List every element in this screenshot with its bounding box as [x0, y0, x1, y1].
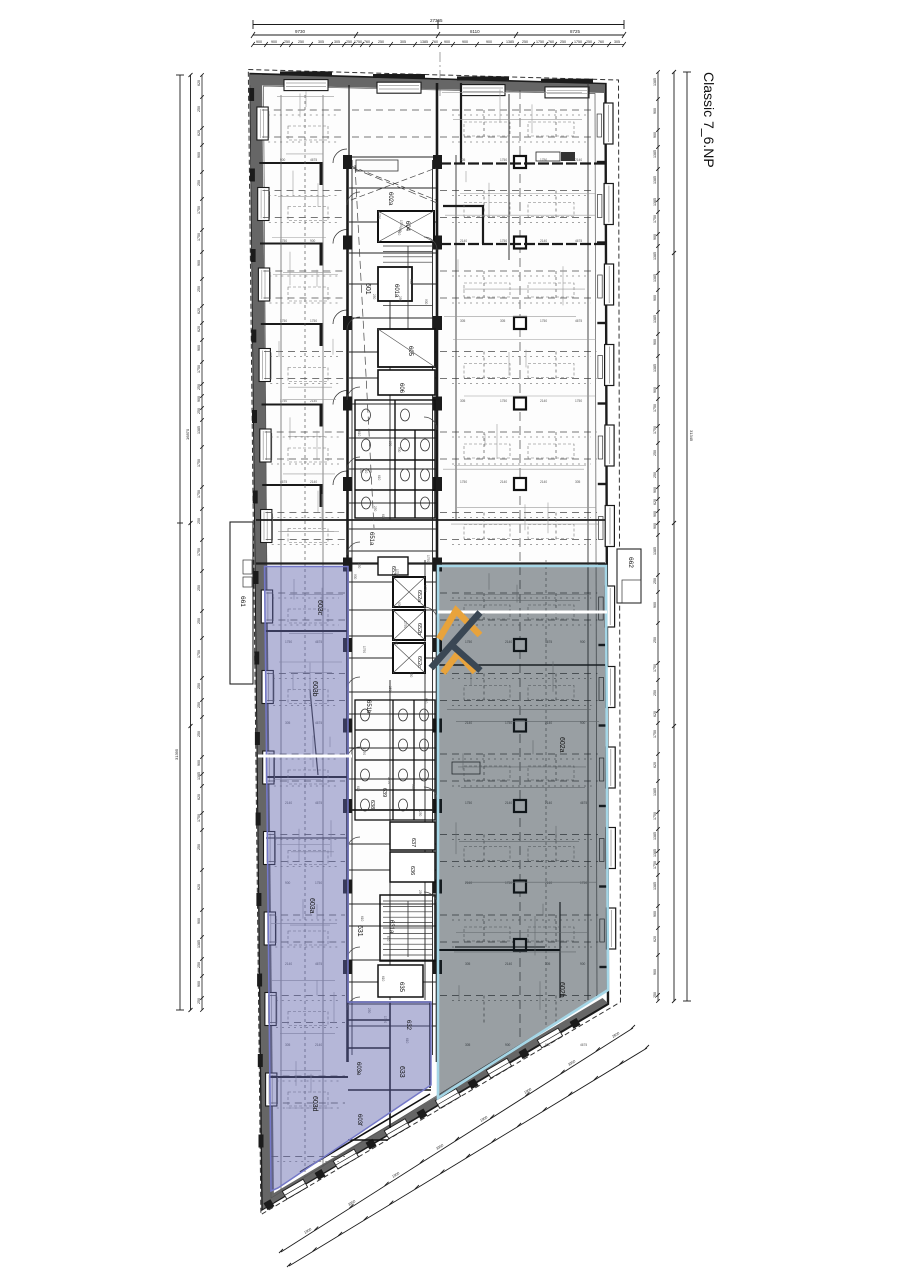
- svg-text:900: 900: [256, 40, 262, 44]
- svg-text:900: 900: [398, 227, 402, 233]
- svg-text:900: 900: [653, 602, 657, 608]
- svg-text:250: 250: [586, 40, 592, 44]
- svg-text:2140: 2140: [540, 399, 547, 403]
- svg-text:250: 250: [197, 408, 201, 414]
- svg-text:900: 900: [197, 918, 201, 924]
- svg-text:900: 900: [653, 523, 657, 529]
- svg-text:1750: 1750: [575, 399, 582, 403]
- svg-text:900: 900: [444, 40, 450, 44]
- svg-text:250: 250: [197, 844, 201, 850]
- svg-text:8725: 8725: [570, 29, 581, 34]
- svg-text:1750: 1750: [197, 233, 201, 241]
- svg-text:1385: 1385: [653, 849, 657, 857]
- svg-text:250: 250: [197, 618, 201, 624]
- svg-text:31395: 31395: [174, 748, 179, 760]
- svg-text:900: 900: [409, 279, 413, 285]
- svg-text:1385: 1385: [653, 198, 657, 206]
- svg-text:760: 760: [598, 40, 604, 44]
- svg-text:900: 900: [271, 40, 277, 44]
- svg-text:1750: 1750: [197, 814, 201, 822]
- svg-text:900: 900: [310, 239, 316, 243]
- svg-text:9730: 9730: [295, 29, 306, 34]
- svg-text:1750: 1750: [197, 650, 201, 658]
- svg-text:602a: 602a: [387, 192, 393, 206]
- svg-text:250: 250: [372, 294, 376, 300]
- svg-text:250: 250: [653, 637, 657, 643]
- svg-text:1385: 1385: [653, 150, 657, 158]
- svg-text:1750: 1750: [536, 40, 544, 44]
- svg-text:1385: 1385: [653, 547, 657, 555]
- svg-text:1750: 1750: [500, 158, 507, 162]
- svg-text:610: 610: [381, 514, 385, 520]
- svg-text:305: 305: [460, 399, 466, 403]
- svg-text:603e: 603e: [355, 1062, 361, 1076]
- svg-text:305: 305: [400, 40, 406, 44]
- svg-text:603b: 603b: [311, 681, 318, 697]
- svg-text:900: 900: [653, 132, 657, 138]
- svg-text:1385: 1385: [420, 40, 428, 44]
- svg-text:610: 610: [357, 431, 361, 437]
- svg-text:1750: 1750: [387, 777, 391, 784]
- svg-text:1385: 1385: [197, 940, 201, 948]
- svg-text:620: 620: [197, 130, 201, 136]
- svg-text:605: 605: [407, 346, 413, 357]
- svg-text:1750: 1750: [653, 426, 657, 434]
- svg-text:2140: 2140: [540, 480, 547, 484]
- svg-text:900: 900: [653, 969, 657, 975]
- svg-text:1750: 1750: [197, 365, 201, 373]
- svg-text:900: 900: [486, 40, 492, 44]
- svg-text:4675: 4675: [575, 319, 582, 323]
- svg-text:900: 900: [653, 911, 657, 917]
- svg-text:250: 250: [346, 40, 352, 44]
- svg-text:900: 900: [397, 602, 401, 608]
- svg-text:250: 250: [378, 40, 384, 44]
- svg-text:250: 250: [298, 40, 304, 44]
- svg-text:900: 900: [197, 152, 201, 158]
- svg-text:900: 900: [411, 784, 415, 790]
- svg-text:1750: 1750: [377, 212, 381, 219]
- svg-text:603c: 603c: [316, 600, 323, 616]
- svg-text:639: 639: [381, 788, 387, 797]
- svg-text:652c: 652c: [416, 656, 422, 668]
- svg-text:250: 250: [197, 683, 201, 689]
- svg-text:1385: 1385: [653, 176, 657, 184]
- svg-text:1750: 1750: [197, 490, 201, 498]
- svg-text:2140: 2140: [575, 158, 582, 162]
- svg-text:250: 250: [653, 690, 657, 696]
- svg-text:900: 900: [353, 574, 357, 580]
- svg-text:250: 250: [394, 640, 398, 646]
- svg-text:900: 900: [424, 299, 428, 305]
- svg-text:636: 636: [409, 866, 415, 875]
- svg-text:603d: 603d: [311, 1096, 318, 1112]
- svg-text:305: 305: [460, 158, 466, 162]
- svg-text:1750: 1750: [653, 730, 657, 738]
- svg-text:900: 900: [653, 234, 657, 240]
- svg-text:1385: 1385: [506, 40, 514, 44]
- svg-text:1385: 1385: [653, 315, 657, 323]
- svg-text:661: 661: [239, 596, 246, 607]
- svg-text:1750: 1750: [403, 621, 407, 628]
- svg-text:250: 250: [284, 40, 290, 44]
- svg-text:610: 610: [381, 976, 385, 982]
- svg-text:1750: 1750: [574, 40, 582, 44]
- svg-text:601a: 601a: [393, 284, 399, 298]
- svg-text:250: 250: [197, 962, 201, 968]
- svg-text:603f: 603f: [356, 1114, 362, 1126]
- svg-text:1385: 1385: [653, 832, 657, 840]
- svg-text:1750: 1750: [362, 748, 366, 755]
- svg-text:1750: 1750: [653, 664, 657, 672]
- svg-text:250: 250: [409, 672, 413, 678]
- svg-text:900: 900: [280, 158, 286, 162]
- svg-text:610: 610: [364, 468, 368, 474]
- svg-text:305: 305: [460, 319, 466, 323]
- svg-text:2140: 2140: [540, 239, 547, 243]
- svg-text:1385: 1385: [653, 78, 657, 86]
- svg-text:250: 250: [197, 286, 201, 292]
- svg-text:250: 250: [522, 40, 528, 44]
- svg-text:1385: 1385: [653, 882, 657, 890]
- svg-text:250: 250: [418, 890, 422, 896]
- svg-text:1750: 1750: [460, 480, 467, 484]
- svg-text:8110: 8110: [470, 29, 480, 34]
- svg-text:1750: 1750: [197, 459, 201, 467]
- svg-text:631a: 631a: [388, 920, 394, 934]
- svg-text:250: 250: [359, 468, 363, 474]
- svg-text:2140: 2140: [500, 480, 507, 484]
- svg-text:620: 620: [653, 711, 657, 717]
- svg-text:620: 620: [653, 499, 657, 505]
- svg-text:250: 250: [653, 578, 657, 584]
- svg-text:1750: 1750: [540, 158, 547, 162]
- svg-text:652b: 652b: [416, 623, 422, 635]
- svg-text:620: 620: [197, 308, 201, 314]
- svg-text:620: 620: [653, 762, 657, 768]
- svg-text:1385: 1385: [653, 788, 657, 796]
- svg-text:Classic 7_6.NP: Classic 7_6.NP: [701, 72, 717, 168]
- svg-text:250: 250: [357, 563, 361, 569]
- svg-text:4675: 4675: [575, 239, 582, 243]
- svg-text:610: 610: [356, 786, 360, 792]
- svg-text:900: 900: [197, 345, 201, 351]
- svg-text:1750: 1750: [653, 861, 657, 869]
- svg-text:900: 900: [197, 981, 201, 987]
- svg-text:601: 601: [364, 283, 371, 295]
- svg-text:620: 620: [197, 794, 201, 800]
- svg-text:250: 250: [197, 180, 201, 186]
- svg-text:305: 305: [334, 40, 340, 44]
- svg-text:900: 900: [653, 487, 657, 493]
- svg-text:610: 610: [377, 475, 381, 481]
- svg-text:305: 305: [318, 40, 324, 44]
- svg-text:4675: 4675: [580, 1043, 587, 1047]
- svg-text:16870: 16870: [185, 428, 190, 440]
- svg-text:1750: 1750: [540, 319, 547, 323]
- svg-text:1750: 1750: [280, 239, 287, 243]
- svg-text:4675: 4675: [280, 480, 287, 484]
- svg-text:900: 900: [462, 40, 468, 44]
- svg-text:662: 662: [627, 557, 634, 568]
- svg-text:2140: 2140: [460, 239, 467, 243]
- svg-text:620: 620: [197, 884, 201, 890]
- svg-text:653: 653: [390, 566, 396, 575]
- svg-text:637: 637: [410, 838, 416, 847]
- svg-text:900: 900: [653, 108, 657, 114]
- svg-text:651b: 651b: [365, 700, 371, 714]
- svg-text:305: 305: [575, 480, 581, 484]
- svg-text:250: 250: [197, 384, 201, 390]
- svg-text:27365: 27365: [430, 18, 443, 23]
- svg-text:1750: 1750: [354, 40, 362, 44]
- svg-text:606: 606: [398, 383, 404, 394]
- svg-text:2140: 2140: [310, 480, 317, 484]
- svg-text:305: 305: [500, 319, 506, 323]
- svg-text:631: 631: [356, 925, 363, 937]
- svg-text:1750: 1750: [653, 215, 657, 223]
- svg-text:1385: 1385: [653, 274, 657, 282]
- svg-text:1750: 1750: [426, 555, 430, 562]
- svg-text:1750: 1750: [197, 548, 201, 556]
- svg-text:620: 620: [197, 80, 201, 86]
- svg-text:31345: 31345: [689, 430, 694, 442]
- svg-text:900: 900: [197, 760, 201, 766]
- svg-text:900: 900: [653, 295, 657, 301]
- svg-text:900: 900: [197, 396, 201, 402]
- svg-text:602a: 602a: [558, 737, 565, 753]
- svg-text:900: 900: [653, 511, 657, 517]
- svg-text:900: 900: [197, 260, 201, 266]
- svg-text:760: 760: [548, 40, 554, 44]
- svg-text:610: 610: [424, 698, 428, 704]
- svg-text:1750: 1750: [197, 206, 201, 214]
- svg-text:632: 632: [405, 1020, 411, 1031]
- svg-text:250: 250: [197, 998, 201, 1004]
- svg-text:1750: 1750: [653, 812, 657, 820]
- svg-text:305: 305: [614, 40, 620, 44]
- svg-text:250: 250: [197, 702, 201, 708]
- svg-text:250: 250: [653, 450, 657, 456]
- svg-text:638: 638: [369, 800, 375, 809]
- svg-text:610: 610: [386, 936, 390, 942]
- svg-text:250: 250: [197, 585, 201, 591]
- svg-text:1385: 1385: [653, 252, 657, 260]
- svg-text:760: 760: [364, 40, 370, 44]
- svg-text:1385: 1385: [197, 772, 201, 780]
- svg-text:610: 610: [360, 916, 364, 922]
- svg-text:250: 250: [197, 518, 201, 524]
- svg-text:760: 760: [432, 40, 438, 44]
- svg-text:604: 604: [404, 221, 410, 232]
- svg-text:1750: 1750: [423, 585, 427, 592]
- svg-text:900: 900: [653, 339, 657, 345]
- svg-text:620: 620: [653, 936, 657, 942]
- svg-text:1750: 1750: [280, 319, 287, 323]
- svg-text:1750: 1750: [362, 646, 366, 653]
- svg-text:652a: 652a: [416, 590, 422, 603]
- svg-text:620: 620: [197, 326, 201, 332]
- svg-text:900: 900: [653, 387, 657, 393]
- svg-text:250: 250: [197, 106, 201, 112]
- svg-text:602b: 602b: [558, 982, 565, 998]
- svg-text:635: 635: [398, 982, 404, 993]
- svg-text:250: 250: [653, 472, 657, 478]
- svg-text:900: 900: [388, 441, 392, 447]
- svg-text:1385: 1385: [653, 364, 657, 372]
- svg-text:250: 250: [653, 992, 657, 998]
- svg-text:1750: 1750: [500, 399, 507, 403]
- svg-text:1385: 1385: [197, 426, 201, 434]
- svg-text:250: 250: [373, 506, 377, 512]
- svg-text:633: 633: [398, 1066, 405, 1078]
- svg-text:1750: 1750: [500, 239, 507, 243]
- svg-text:651a: 651a: [368, 532, 374, 546]
- svg-text:250: 250: [197, 731, 201, 737]
- svg-text:250: 250: [418, 811, 422, 817]
- svg-text:900: 900: [397, 447, 401, 453]
- svg-text:1750: 1750: [653, 404, 657, 412]
- svg-text:250: 250: [560, 40, 566, 44]
- svg-text:4675: 4675: [310, 158, 317, 162]
- svg-text:603a: 603a: [308, 898, 315, 914]
- svg-text:900: 900: [545, 1043, 551, 1047]
- svg-text:250: 250: [388, 686, 392, 692]
- svg-text:1750: 1750: [310, 319, 317, 323]
